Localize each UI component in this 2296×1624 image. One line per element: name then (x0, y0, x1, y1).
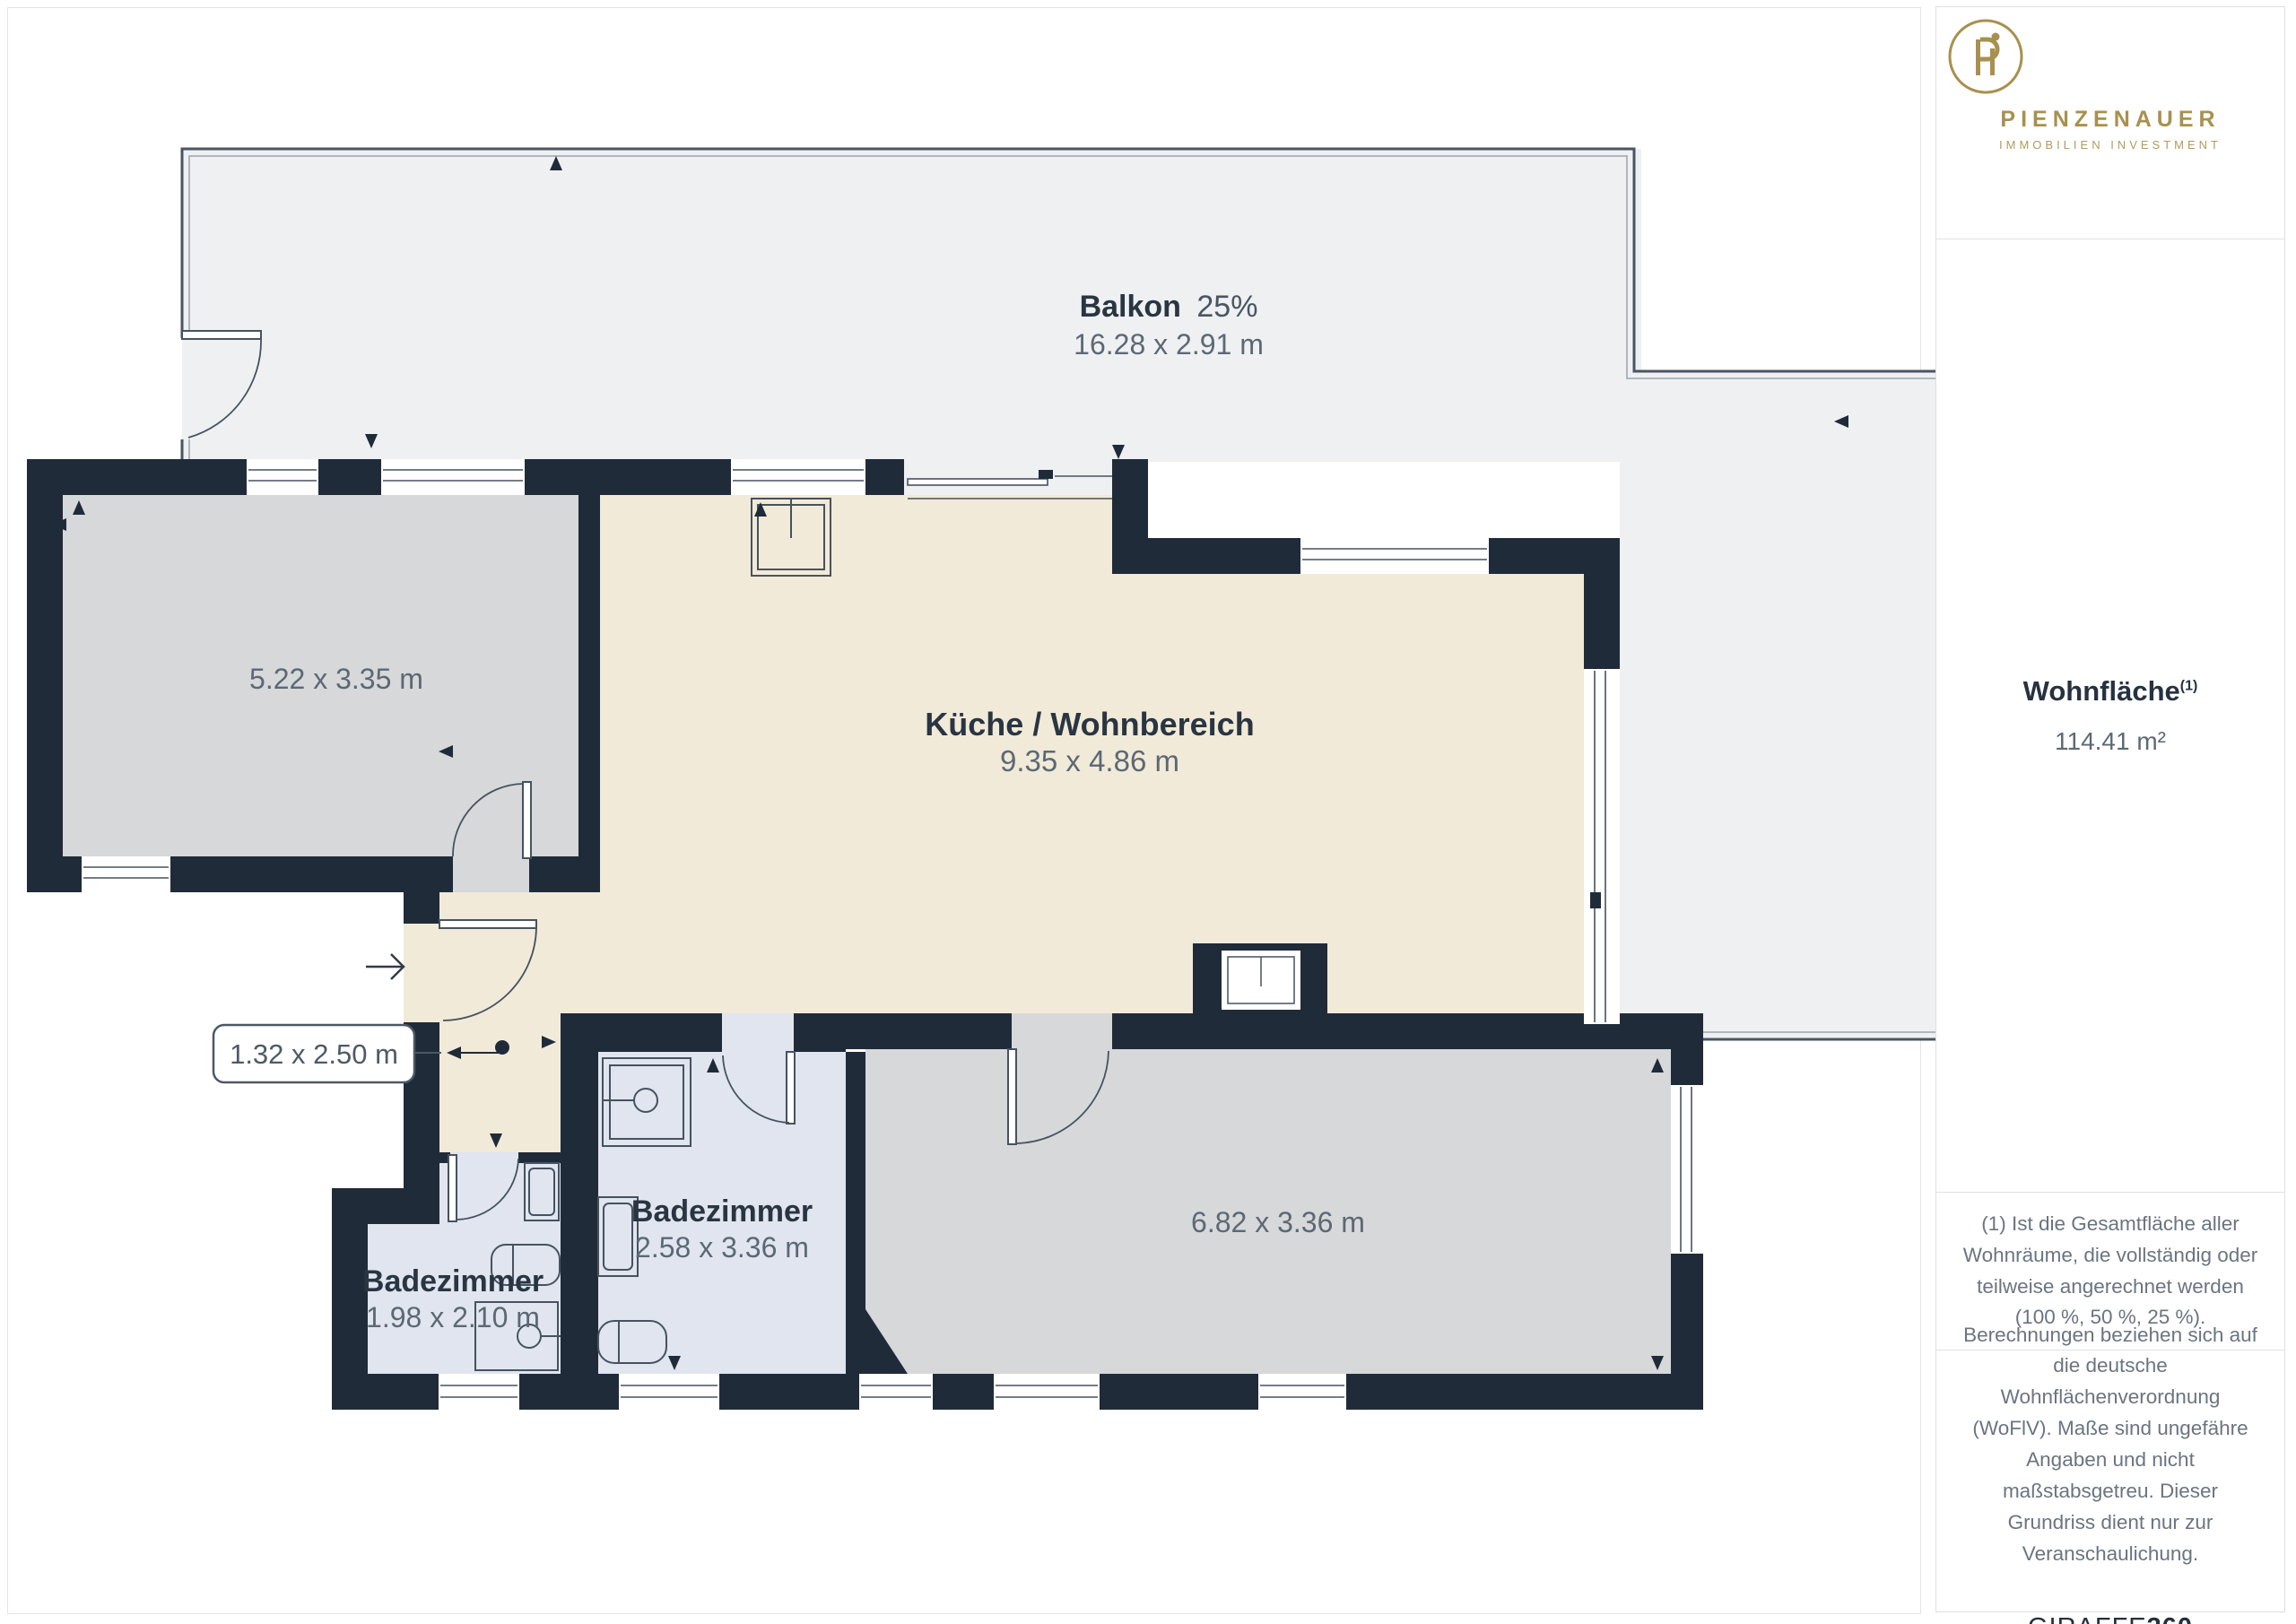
bedroom-dims: 6.82 x 3.36 m (1191, 1206, 1365, 1238)
balcony-label: Balkon 25% (1080, 290, 1258, 324)
brand-panel: PIENZENAUER IMMOBILIEN INVESTMENT (1935, 6, 2285, 239)
bathroom-main-label: Badezimmer (631, 1194, 813, 1229)
bathroom-main-dims: 2.58 x 3.36 m (635, 1231, 809, 1264)
pienzenauer-logo-icon (1936, 7, 2035, 106)
brand-tagline: IMMOBILIEN INVESTMENT (1999, 138, 2222, 152)
kitchen-label: Küche / Wohnbereich (925, 706, 1254, 743)
entry-arrow-icon (366, 954, 404, 979)
hall-dims-label: 1.32 x 2.50 m (230, 1038, 398, 1070)
disclaimer-panel: Berechnungen beziehen sich auf die deuts… (1935, 1350, 2285, 1612)
window (1300, 538, 1489, 574)
sidebar: PIENZENAUER IMMOBILIEN INVESTMENT Wohnfl… (1935, 6, 2287, 1612)
giraffe360-watermark: GIRAFFE360 (2028, 1613, 2193, 1624)
sliding-door (904, 459, 1112, 499)
kitchen-dims: 9.35 x 4.86 m (1000, 744, 1179, 777)
window (82, 856, 170, 892)
disclaimer-text: Berechnungen beziehen sich auf die deuts… (1962, 1320, 2258, 1570)
window (381, 459, 525, 495)
footnote-text: (1) Ist die Gesamtfläche aller Wohnräume… (1962, 1209, 2258, 1334)
brand-name: PIENZENAUER (2000, 107, 2220, 133)
footnote-ref: (1) (2180, 679, 2198, 694)
living-area-panel: Wohnfläche(1) 114.41 m² (1935, 239, 2285, 1193)
window (439, 1374, 519, 1410)
window (731, 459, 865, 495)
wall-niche (1222, 951, 1300, 1010)
bathroom-small-label: Badezimmer (362, 1264, 544, 1298)
bathroom-small-dims: 1.98 x 2.10 m (366, 1301, 540, 1333)
window (1584, 669, 1620, 1024)
window (994, 1374, 1100, 1410)
window (247, 459, 318, 495)
balcony-dims: 16.28 x 2.91 m (1074, 328, 1264, 360)
window (859, 1374, 933, 1410)
living-area-label: Wohnfläche(1) (2023, 675, 2198, 708)
living-area-value: 114.41 m² (2055, 727, 2166, 756)
room-left-dims: 5.22 x 3.35 m (249, 663, 423, 695)
window (1258, 1374, 1346, 1410)
window (1671, 1085, 1703, 1254)
floorplan-page: 1.32 x 2.50 m Balkon 25% 16.28 x 2.91 m … (0, 0, 2296, 1624)
window (619, 1374, 719, 1410)
